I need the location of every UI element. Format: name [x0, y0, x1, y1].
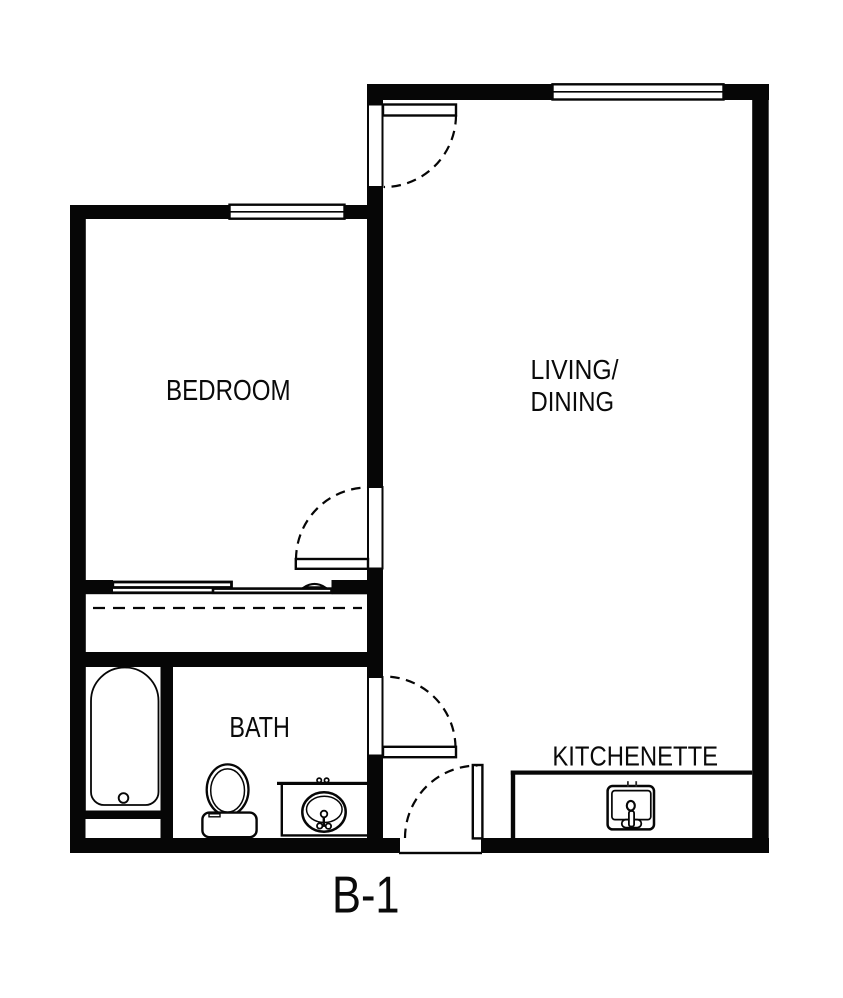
svg-text:BEDROOM: BEDROOM — [166, 375, 291, 407]
svg-text:LIVING/: LIVING/ — [531, 354, 619, 385]
svg-text:B-1: B-1 — [332, 866, 400, 924]
svg-text:BATH: BATH — [229, 712, 290, 744]
svg-text:DINING: DINING — [531, 386, 615, 417]
svg-text:KITCHENETTE: KITCHENETTE — [552, 740, 718, 771]
